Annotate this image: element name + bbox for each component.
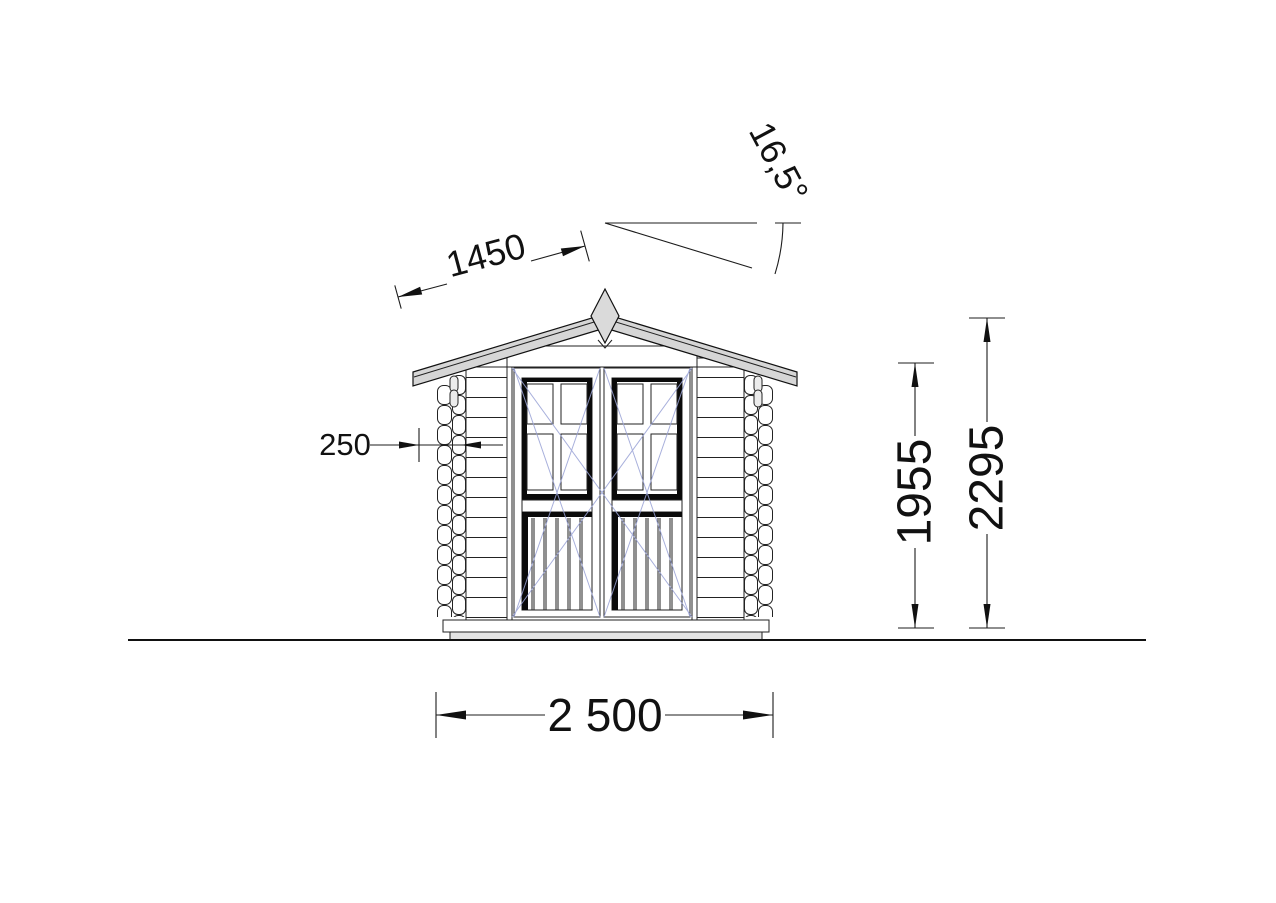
dimension-overall-width: 2 500 [436,689,773,741]
cabin-front-elevation: 1450 16,5° 250 1955 2295 2 500 [0,0,1276,903]
dimension-ridge-height: 2295 [961,318,1014,628]
dim-overall-width-value: 2 500 [547,689,662,741]
dimension-roof-slope: 1450 [395,225,590,309]
floor-base [443,620,769,640]
base-strip [450,632,762,640]
cabin-elevation [413,289,797,640]
ridge-finial [591,289,619,343]
dim-corner-log-value: 250 [319,427,371,462]
dimension-wall-height: 1955 [889,363,942,628]
double-door [507,346,697,620]
corner-log-ends-right [744,375,773,617]
dim-roof-slope-value: 1450 [442,225,530,285]
dimension-roof-angle: 16,5° [605,115,817,274]
technical-drawing-page: 1450 16,5° 250 1955 2295 2 500 [0,0,1276,903]
dim-ridge-height-value: 2295 [961,425,1014,532]
wall-logs-right [697,367,744,620]
dim-roof-angle-value: 16,5° [741,115,817,209]
dim-wall-height-value: 1955 [889,439,942,546]
wall-logs-left [466,367,507,620]
corner-log-ends-left [437,375,466,617]
